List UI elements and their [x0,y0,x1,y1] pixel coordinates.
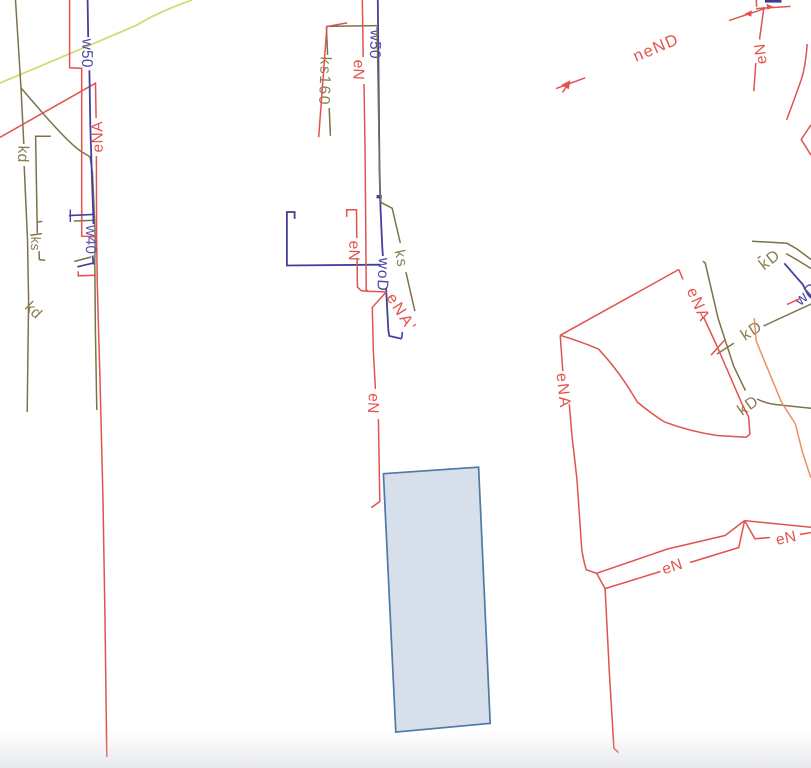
svg-text:eN: eN [364,393,382,414]
svg-text:kd: kd [14,145,32,162]
svg-text:w50: w50 [78,37,96,68]
svg-text:w40: w40 [82,224,100,255]
svg-text:eN: eN [345,240,363,261]
svg-text:eN: eN [751,42,770,65]
svg-text:eN: eN [349,59,367,80]
svg-text:woD: woD [373,256,392,292]
svg-text:ks: ks [28,236,43,250]
svg-text:w50: w50 [366,28,384,59]
